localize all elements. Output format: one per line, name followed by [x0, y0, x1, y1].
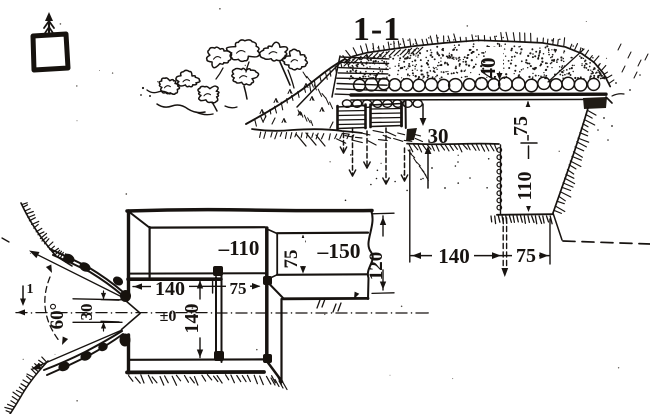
svg-text:40: 40 [476, 58, 500, 79]
svg-text:110: 110 [514, 172, 536, 201]
svg-text:±0: ±0 [160, 308, 177, 325]
svg-text:60°: 60° [47, 303, 68, 330]
svg-text:30: 30 [77, 304, 96, 321]
svg-text:75: 75 [516, 245, 536, 267]
svg-text:120: 120 [366, 252, 387, 281]
svg-text:30: 30 [428, 124, 449, 148]
svg-text:–110: –110 [218, 236, 260, 260]
svg-text:140: 140 [438, 244, 470, 268]
svg-text:–150: –150 [317, 239, 361, 263]
svg-text:75: 75 [230, 279, 247, 298]
svg-text:1: 1 [27, 282, 34, 297]
svg-text:140: 140 [155, 278, 185, 300]
svg-text:75: 75 [510, 116, 532, 136]
svg-text:75: 75 [281, 250, 302, 269]
